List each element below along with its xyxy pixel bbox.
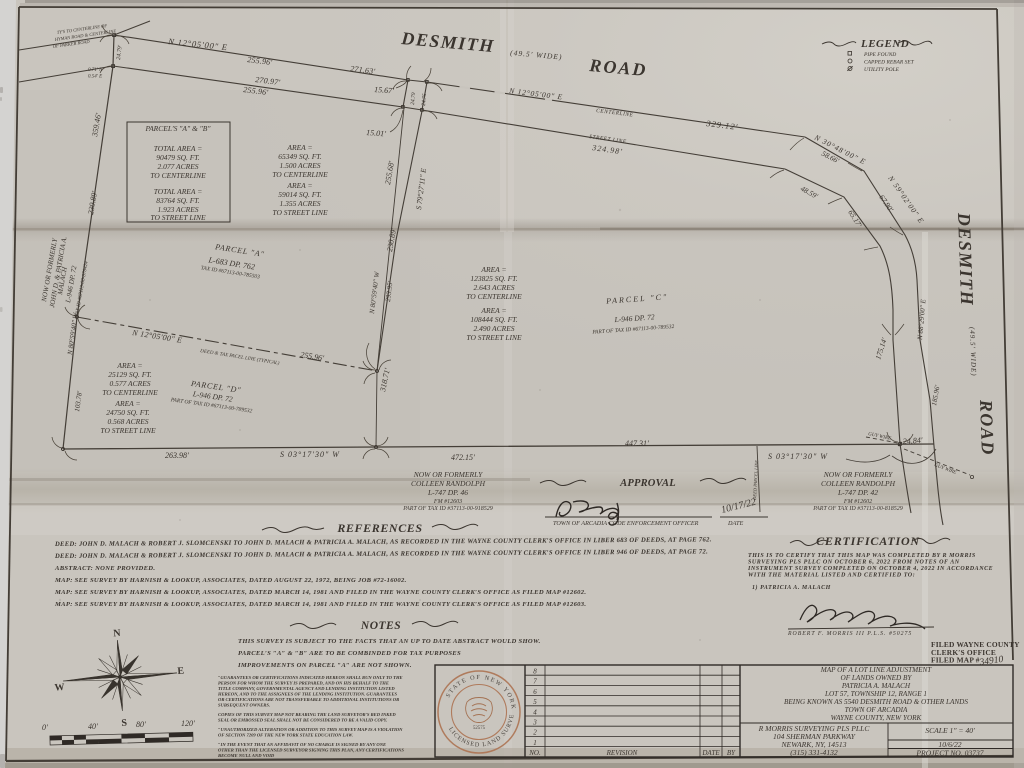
- svg-text:COPIES OF THIS SURVEY MAP NOT: COPIES OF THIS SURVEY MAP NOT BEARING TH…: [218, 712, 396, 717]
- svg-text:LOT 57, TOWNSHIP 12, RANGE 1: LOT 57, TOWNSHIP 12, RANGE 1: [824, 690, 927, 698]
- svg-text:15.01′: 15.01′: [366, 128, 387, 138]
- svg-text:AREA =: AREA =: [286, 143, 312, 152]
- svg-text:DATE: DATE: [701, 749, 720, 757]
- svg-text:MAP: SEE SURVEY BY HARNISH & L: MAP: SEE SURVEY BY HARNISH & LOOKUP, ASS…: [54, 601, 586, 608]
- svg-text:″IN THE EVENT THAT AN AFFIDAVI: ″IN THE EVENT THAT AN AFFIDAVIT OF NO CH…: [218, 742, 386, 747]
- svg-text:15.67′: 15.67′: [374, 85, 395, 95]
- svg-text:TO STREET LINE: TO STREET LINE: [100, 426, 156, 435]
- svg-text:BY: BY: [727, 749, 736, 757]
- svg-text:2.077 ACRES: 2.077 ACRES: [157, 162, 198, 171]
- svg-text:REFERENCES: REFERENCES: [336, 521, 422, 535]
- svg-text:65349 SQ. FT.: 65349 SQ. FT.: [278, 152, 322, 161]
- svg-text:FM #12603: FM #12603: [433, 499, 462, 505]
- svg-text:ROBERT F. MORRIS III P.L.S. #5: ROBERT F. MORRIS III P.L.S. #50275: [787, 631, 912, 637]
- svg-text:DATE: DATE: [727, 520, 743, 527]
- svg-text:108444 SQ. FT.: 108444 SQ. FT.: [470, 315, 517, 324]
- svg-text:8: 8: [533, 668, 537, 676]
- svg-text:PARCEL′S ″A″ & ″B″: PARCEL′S ″A″ & ″B″: [144, 124, 211, 133]
- svg-text:PATRICIA A. MALACH: PATRICIA A. MALACH: [841, 682, 911, 690]
- svg-text:MAP: SEE SURVEY BY HARNISH & L: MAP: SEE SURVEY BY HARNISH & LOOKUP, ASS…: [54, 577, 407, 584]
- svg-text:NO.: NO.: [528, 749, 541, 757]
- svg-text:2.643 ACRES: 2.643 ACRES: [473, 283, 514, 292]
- svg-text:AREA =: AREA =: [480, 265, 506, 274]
- svg-text:HEREON, AND TO THE ASSIGNEES O: HEREON, AND TO THE ASSIGNEES OF THE LEND…: [217, 692, 398, 697]
- svg-text:CAPPED REBAR SET: CAPPED REBAR SET: [864, 60, 915, 66]
- svg-text:S 03°17′30″ W: S 03°17′30″ W: [280, 450, 340, 459]
- svg-text:REVISION: REVISION: [606, 749, 638, 757]
- svg-text:THIS IS TO CERTIFY THAT THIS M: THIS IS TO CERTIFY THAT THIS MAP WAS COM…: [748, 553, 976, 559]
- svg-text:TO CENTERLINE: TO CENTERLINE: [102, 388, 158, 397]
- svg-text:52575: 52575: [473, 726, 486, 731]
- svg-text:IMPROVEMENTS ON PARCEL ″A″ ARE: IMPROVEMENTS ON PARCEL ″A″ ARE NOT SHOWN…: [237, 662, 412, 669]
- svg-text:24.75: 24.75: [420, 93, 428, 106]
- svg-text:2: 2: [533, 729, 537, 737]
- svg-text:24750 SQ. FT.: 24750 SQ. FT.: [106, 408, 150, 417]
- svg-text:0.71′ N: 0.71′ N: [88, 68, 103, 73]
- svg-text:TITLE COMPANY, GOVERNMENTAL AG: TITLE COMPANY, GOVERNMENTAL AGENCY AND L…: [218, 686, 395, 691]
- svg-text:25129 SQ. FT.: 25129 SQ. FT.: [108, 370, 152, 379]
- svg-text:BEING KNOWN AS 5540 DESMITH RO: BEING KNOWN AS 5540 DESMITH ROAD & OTHER…: [784, 698, 968, 706]
- svg-text:WAYNE COUNTY, NEW YORK: WAYNE COUNTY, NEW YORK: [831, 714, 923, 722]
- svg-text:PERSON FOR WHOM THE SURVEY IS: PERSON FOR WHOM THE SURVEY IS PREPARED, …: [218, 681, 389, 686]
- svg-text:1) PATRICIA A. MALACH: 1) PATRICIA A. MALACH: [752, 584, 831, 591]
- svg-text:0.577 ACRES: 0.577 ACRES: [109, 379, 150, 388]
- svg-text:SCALE 1″ = 40′: SCALE 1″ = 40′: [925, 726, 975, 735]
- svg-text:L-747 DP. 46: L-747 DP. 46: [427, 488, 468, 497]
- svg-text:1: 1: [533, 739, 537, 747]
- svg-text:TO CENTERLINE: TO CENTERLINE: [466, 292, 522, 301]
- svg-text:7: 7: [533, 678, 537, 686]
- svg-text:L-747 DP. 42: L-747 DP. 42: [837, 488, 878, 497]
- svg-text:PROJECT NO. 03737: PROJECT NO. 03737: [915, 749, 984, 758]
- svg-text:472.15′: 472.15′: [451, 453, 475, 462]
- svg-text:1.500 ACRES: 1.500 ACRES: [279, 161, 320, 170]
- svg-text:TO STREET LINE: TO STREET LINE: [272, 208, 328, 217]
- svg-text:PIPE FOUND: PIPE FOUND: [863, 52, 896, 58]
- svg-text:0′: 0′: [42, 723, 48, 732]
- svg-text:ROAD: ROAD: [976, 398, 998, 456]
- svg-text:1.355 ACRES: 1.355 ACRES: [279, 199, 320, 208]
- svg-text:TOWN OF ARCADIA CODE ENFORCEME: TOWN OF ARCADIA CODE ENFORCEMENT OFFICER: [553, 520, 699, 527]
- svg-text:AREA =: AREA =: [116, 361, 142, 370]
- svg-text:2.490 ACRES: 2.490 ACRES: [473, 324, 514, 333]
- svg-text:40′: 40′: [88, 722, 98, 731]
- svg-text:MAP OF A LOT LINE ADJUSTMENT: MAP OF A LOT LINE ADJUSTMENT: [820, 666, 933, 674]
- svg-text:(315) 331-4132: (315) 331-4132: [790, 748, 838, 757]
- svg-text:AREA =: AREA =: [480, 306, 506, 315]
- svg-text:3: 3: [532, 719, 537, 727]
- svg-text:INSTRUMENT SURVEY COMPLETED ON: INSTRUMENT SURVEY COMPLETED ON OCTOBER 4…: [747, 566, 993, 572]
- svg-text:NOW OR FORMERLY: NOW OR FORMERLY: [823, 470, 893, 479]
- svg-text:24.84′: 24.84′: [903, 436, 924, 446]
- svg-text:24.79: 24.79: [409, 92, 417, 105]
- svg-text:THIS SURVEY IS SUBJECT TO THE: THIS SURVEY IS SUBJECT TO THE FACTS THAT…: [238, 638, 541, 645]
- svg-text:LEGEND: LEGEND: [860, 38, 909, 50]
- svg-text:0.54′ E: 0.54′ E: [88, 75, 102, 80]
- svg-text:TOTAL AREA =: TOTAL AREA =: [154, 187, 203, 196]
- svg-text:59014 SQ. FT.: 59014 SQ. FT.: [278, 190, 322, 199]
- svg-text:263.98′: 263.98′: [165, 451, 189, 460]
- svg-text:OR CERTIFICATIONS ARE NOT TRAN: OR CERTIFICATIONS ARE NOT TRANSFERABLE T…: [218, 697, 399, 702]
- svg-text:BECOME NULL AND VOID: BECOME NULL AND VOID: [217, 753, 275, 758]
- svg-text:120′: 120′: [181, 719, 195, 728]
- svg-text:APPROVAL: APPROVAL: [619, 478, 676, 489]
- svg-text:PART OF TAX ID #37113-00-91852: PART OF TAX ID #37113-00-918529: [402, 506, 493, 512]
- svg-text:TOTAL AREA =: TOTAL AREA =: [154, 144, 203, 153]
- svg-text:FILED MAP #: FILED MAP #: [931, 656, 980, 665]
- svg-text:E: E: [177, 666, 185, 677]
- svg-text:ABSTRACT: NONE PROVIDED.: ABSTRACT: NONE PROVIDED.: [54, 565, 155, 572]
- svg-text:MAP: SEE SURVEY BY HARNISH & L: MAP: SEE SURVEY BY HARNISH & LOOKUP, ASS…: [54, 589, 586, 596]
- svg-text:WITH THE MATERIAL LISTED AND C: WITH THE MATERIAL LISTED AND CERTIFIED T…: [748, 573, 915, 579]
- svg-text:TO CENTERLINE: TO CENTERLINE: [150, 171, 206, 180]
- svg-text:TOWN OF ARCADIA: TOWN OF ARCADIA: [845, 706, 908, 714]
- svg-text:CERTIFICATION: CERTIFICATION: [816, 534, 920, 548]
- svg-text:6: 6: [533, 688, 537, 696]
- svg-text:W: W: [54, 682, 65, 694]
- svg-text:″UNAUTHORIZED ALTERATION OR AD: ″UNAUTHORIZED ALTERATION OR ADDITION TO …: [218, 727, 403, 732]
- svg-text:NOW OR FORMERLY: NOW OR FORMERLY: [413, 470, 483, 479]
- svg-text:SEAL OR EMBOSSED SEAL SHALL NO: SEAL OR EMBOSSED SEAL SHALL NOT BE CONSI…: [218, 718, 388, 723]
- svg-text:OTHER THAN THE LICENSED SURVEY: OTHER THAN THE LICENSED SURVEYOR SIGNING…: [218, 748, 404, 753]
- svg-text:TO CENTERLINE: TO CENTERLINE: [272, 170, 328, 179]
- svg-text:FM #12602: FM #12602: [843, 499, 872, 505]
- svg-text:SURVEYING PLS PLLC ON OCTOBER: SURVEYING PLS PLLC ON OCTOBER 6, 2022 FR…: [748, 560, 960, 566]
- svg-text:UTILITY POLE: UTILITY POLE: [864, 67, 900, 73]
- svg-text:AREA =: AREA =: [114, 399, 140, 408]
- svg-text:123825 SQ. FT.: 123825 SQ. FT.: [470, 274, 517, 283]
- svg-text:OF LANDS OWNED BY: OF LANDS OWNED BY: [841, 674, 913, 682]
- svg-text:447.31′: 447.31′: [625, 439, 649, 448]
- svg-text:OF SECTION 7209 OF THE NEW YOR: OF SECTION 7209 OF THE NEW YORK STATE ED…: [218, 733, 353, 738]
- svg-text:PART OF TAX ID #37113-00-81852: PART OF TAX ID #37113-00-818529: [812, 506, 903, 512]
- svg-text:COLLEEN RANDOLPH: COLLEEN RANDOLPH: [411, 479, 486, 488]
- svg-text:SUBSEQUENT OWNERS.: SUBSEQUENT OWNERS.: [218, 703, 270, 708]
- svg-text:4: 4: [533, 708, 537, 716]
- svg-text:80′: 80′: [136, 720, 146, 729]
- svg-text:COLLEEN RANDOLPH: COLLEEN RANDOLPH: [821, 479, 896, 488]
- svg-text:NOTES: NOTES: [360, 620, 401, 632]
- svg-text:S 03°17′30″ W: S 03°17′30″ W: [768, 452, 828, 461]
- svg-text:90479 SQ. FT.: 90479 SQ. FT.: [156, 153, 200, 162]
- svg-text:TO STREET LINE: TO STREET LINE: [150, 213, 206, 222]
- svg-text:″GUARANTEES OR CERTIFICATIONS: ″GUARANTEES OR CERTIFICATIONS INDICATED …: [218, 675, 403, 680]
- svg-text:5: 5: [533, 698, 537, 706]
- svg-text:AREA =: AREA =: [286, 181, 312, 190]
- svg-text:PARCEL′S ″A″ & ″B″ ARE TO BE C: PARCEL′S ″A″ & ″B″ ARE TO BE COMBINDED F…: [238, 650, 461, 657]
- svg-text:TO STREET LINE: TO STREET LINE: [466, 333, 522, 342]
- svg-text:DESMITH: DESMITH: [954, 211, 977, 306]
- svg-text:83764 SQ. FT.: 83764 SQ. FT.: [156, 196, 200, 205]
- svg-text:0.568 ACRES: 0.568 ACRES: [107, 417, 148, 426]
